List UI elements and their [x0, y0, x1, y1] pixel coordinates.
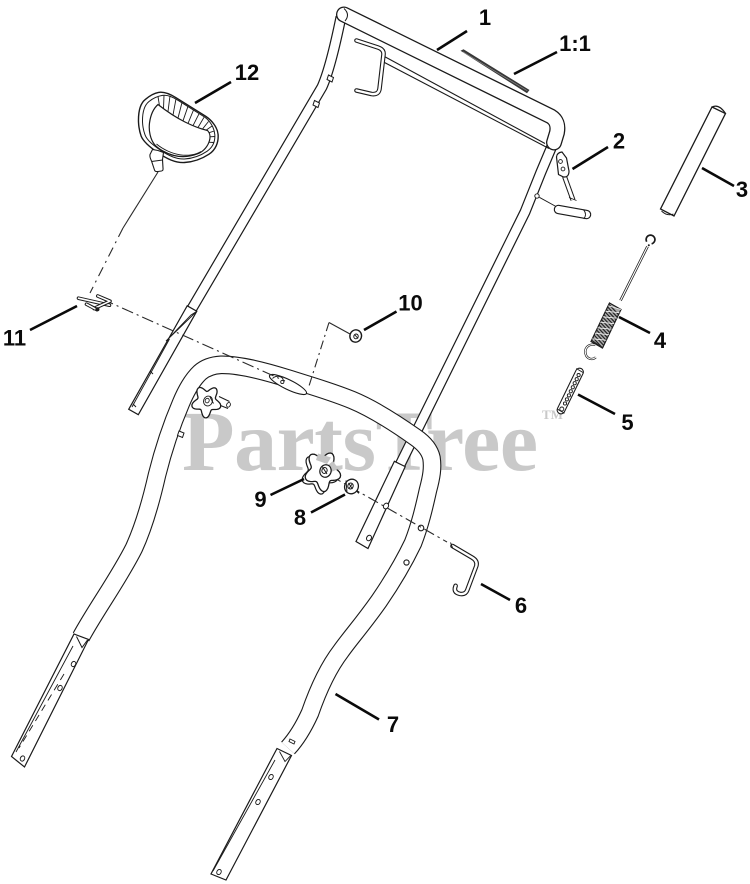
svg-text:6: 6 [515, 593, 527, 618]
svg-text:10: 10 [398, 291, 422, 316]
svg-text:3: 3 [736, 177, 748, 202]
svg-text:1:1: 1:1 [559, 31, 591, 56]
svg-text:12: 12 [235, 60, 259, 85]
svg-text:7: 7 [387, 712, 399, 737]
svg-text:8: 8 [294, 505, 306, 530]
svg-text:4: 4 [654, 328, 667, 353]
svg-text:2: 2 [613, 129, 625, 154]
svg-text:9: 9 [254, 487, 266, 512]
svg-text:5: 5 [621, 410, 633, 435]
svg-text:11: 11 [3, 326, 26, 351]
svg-text:1: 1 [479, 5, 491, 30]
